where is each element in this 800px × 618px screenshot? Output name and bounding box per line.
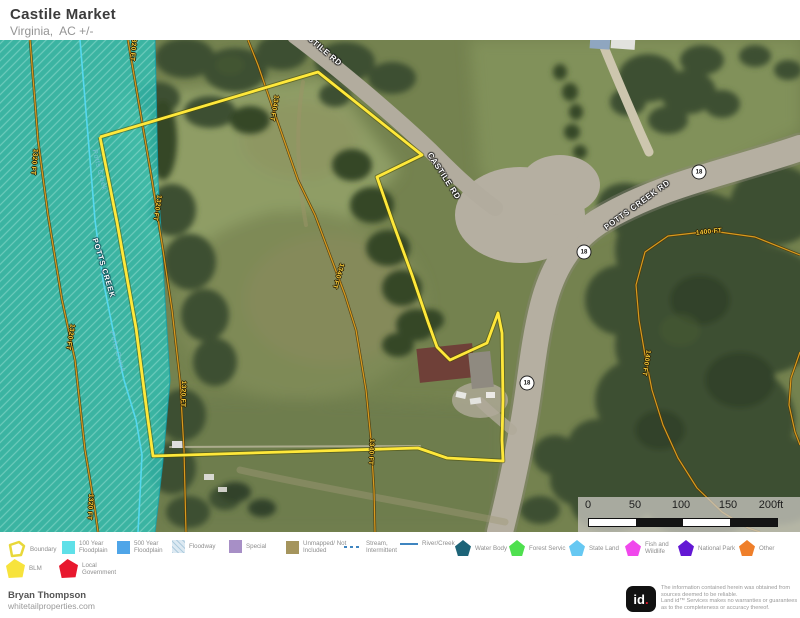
scale-tick-label: 150 (719, 499, 737, 511)
scale-bar-segments (588, 518, 778, 527)
legend-label: Other (759, 545, 789, 552)
legend-item: Water Body (455, 540, 515, 556)
route-shield: 18 (692, 165, 707, 180)
legend-swatch-dash-line (344, 546, 362, 548)
legend: Boundary100 Year Floodplain500 Year Floo… (0, 532, 800, 582)
disclaimer-line: sources deemed to be reliable. (661, 592, 798, 599)
scale-bar: 050100150200ft (578, 497, 800, 532)
logo-dot: . (645, 592, 649, 607)
disclaimer-line: Land id™ Services makes no warranties or… (661, 598, 798, 605)
legend-swatch-square (229, 540, 242, 553)
floodplain-overlay (0, 40, 170, 532)
legend-swatch-pentagon (625, 540, 641, 556)
land-id-logo: id. (626, 586, 656, 612)
scale-tick-label: 100 (672, 499, 690, 511)
legend-swatch-pentagon (569, 540, 585, 556)
legend-item: Stream, Intermittent (344, 540, 404, 554)
disclaimer-line: The information contained herein was obt… (661, 585, 798, 592)
page: Castile Market Virginia, AC +/- (0, 0, 800, 618)
legend-swatch-pentagon2 (6, 559, 25, 578)
page-subtitle: Virginia, AC +/- (10, 24, 93, 38)
route-shield: 18 (520, 376, 535, 391)
legend-item: BLM (6, 559, 59, 578)
website-text: whitetailproperties.com (8, 601, 95, 611)
legend-item: Fish and Wildlife (625, 540, 679, 556)
scale-segment (636, 519, 683, 526)
legend-swatch-solid-line (400, 543, 418, 545)
legend-item: Floodway (172, 540, 233, 553)
legend-swatch-square (286, 541, 299, 554)
legend-item: Local Government (59, 559, 130, 578)
scale-segment (683, 519, 730, 526)
route-shield: 18 (577, 245, 592, 260)
scale-segment (730, 519, 777, 526)
legend-item: State Land (569, 540, 633, 556)
disclaimer-text: The information contained herein was obt… (661, 585, 798, 611)
legend-label: 100 Year Floodplain (79, 540, 119, 554)
footer: Bryan Thompson whitetailproperties.com i… (0, 582, 800, 618)
legend-swatch-pentagon (509, 540, 525, 556)
map-canvas[interactable]: CASTILE RDCASTILE RDPOTTS CREEK RDPOTTS … (0, 40, 800, 532)
logo-text: id (633, 592, 645, 607)
legend-swatch-pentagon (739, 540, 755, 556)
legend-swatch-boundary (6, 540, 26, 558)
page-title: Castile Market (10, 6, 116, 23)
legend-swatch-square-hatch (172, 540, 185, 553)
legend-label: BLM (29, 565, 59, 572)
legend-label: 500 Year Floodplain (134, 540, 174, 554)
legend-label: Special (246, 543, 286, 550)
scale-tick-label: 0 (585, 499, 591, 511)
legend-item: Unmapped/ Not Included (286, 540, 351, 554)
legend-item: 500 Year Floodplain (117, 540, 174, 554)
legend-item: Special (229, 540, 286, 553)
legend-swatch-square (62, 541, 75, 554)
legend-item: 100 Year Floodplain (62, 540, 119, 554)
author-name: Bryan Thompson (8, 590, 86, 601)
legend-swatch-pentagon (678, 540, 694, 556)
legend-swatch-square (117, 541, 130, 554)
legend-swatch-pentagon2 (59, 559, 78, 578)
disclaimer-line: as to the completeness or accuracy there… (661, 605, 798, 612)
legend-label: Local Government (82, 562, 130, 576)
aerial-imagery (0, 40, 800, 532)
scale-segment (589, 519, 636, 526)
legend-label: Fish and Wildlife (645, 541, 679, 555)
legend-swatch-pentagon (455, 540, 471, 556)
header: Castile Market Virginia, AC +/- (0, 0, 800, 40)
legend-item: Boundary (6, 540, 70, 558)
scale-tick-label: 200ft (759, 499, 783, 511)
legend-label: Floodway (189, 543, 233, 550)
legend-label: Stream, Intermittent (366, 540, 404, 554)
legend-item: Other (739, 540, 789, 556)
scale-tick-label: 50 (629, 499, 641, 511)
